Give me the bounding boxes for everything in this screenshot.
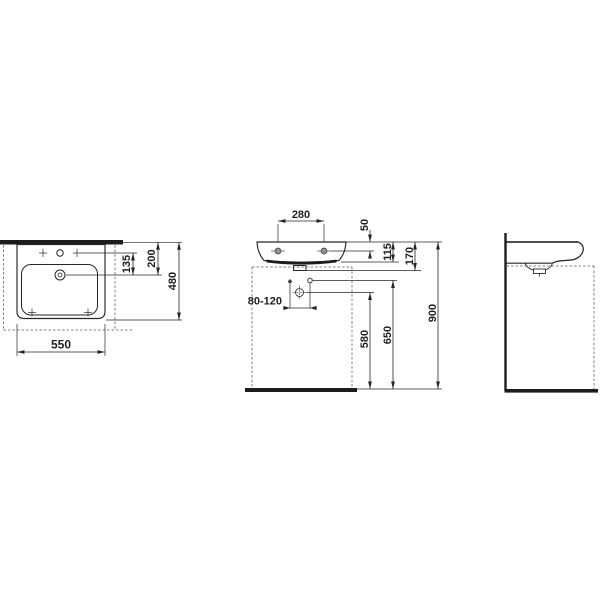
tap-hole — [57, 250, 63, 256]
dim-label-top-to-fixing: 50 — [359, 219, 371, 231]
dim-label-floor-to-trap: 580 — [359, 330, 371, 348]
side-view — [505, 233, 599, 393]
dim-label-top-to-underside: 115 — [382, 243, 394, 261]
drain-profile-side — [525, 263, 553, 276]
drain-hole-inner — [58, 273, 62, 277]
waste-outlet-crosshair — [293, 286, 307, 300]
dim-label-top-to-outlet: 170 — [404, 247, 416, 265]
wall-section-bar-plan — [0, 240, 123, 245]
basin-bowl-plan — [22, 265, 98, 316]
dim-label-rear-to-drain: 200 — [146, 249, 158, 267]
fixing-hole-right — [321, 248, 327, 254]
floor-section-bar-side — [505, 389, 599, 393]
connection-leaders — [290, 281, 397, 309]
washbasin-technical-drawing: 135 200 480 550 — [0, 0, 600, 600]
clearance-outline-front — [252, 267, 352, 388]
dimension-line-outlet-offset — [283, 306, 317, 310]
dim-label-tap-to-drain: 135 — [121, 255, 133, 273]
drain-hole-outer — [55, 270, 65, 280]
dim-label-floor-to-supply: 650 — [382, 326, 394, 344]
basin-outline-front — [257, 242, 346, 262]
drain-plug-front — [294, 266, 307, 271]
dim-label-tap-hole-spacing: 280 — [292, 209, 310, 221]
clearance-outline-side — [507, 266, 595, 389]
supply-point-right — [308, 278, 313, 283]
clearance-outline-plan — [4, 245, 134, 330]
floor-section-bar-front — [245, 388, 357, 392]
dim-label-depth: 480 — [167, 272, 179, 290]
dim-label-outlet-offset: 80-120 — [248, 296, 282, 308]
drawing-canvas: 135 200 480 550 — [0, 0, 600, 600]
basin-profile-side — [507, 242, 584, 263]
dim-label-mounting-height: 900 — [427, 304, 439, 322]
dim-label-width: 550 — [51, 338, 71, 352]
fixing-hole-left — [275, 248, 281, 254]
supply-point-left — [288, 279, 293, 284]
